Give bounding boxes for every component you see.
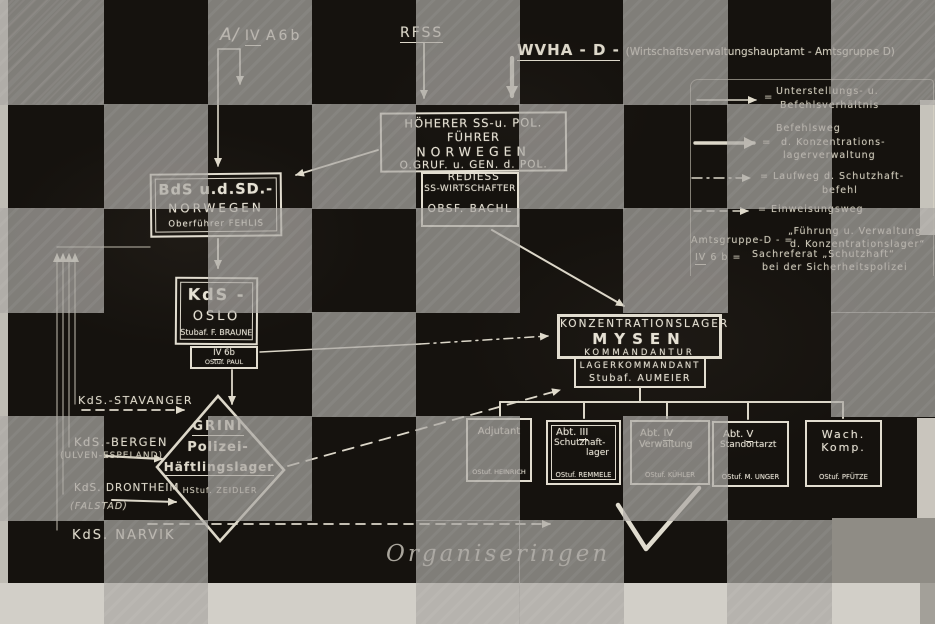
legend-def-amtsgruppe-term: Amtsgruppe-D - = [691, 235, 793, 246]
grini-line-3-text: Häftlingslager [164, 460, 274, 476]
legend-eq-2: = [762, 137, 771, 148]
legend-item-4-line-1: = Einweisungsweg [758, 204, 864, 215]
legend-item-3-line-2: befehl [822, 185, 858, 196]
legend-def-iv6b-line-2: bei der Sicherheitspolizei [762, 262, 908, 273]
kds-stavanger-label: KdS.-STAVANGER [78, 394, 193, 407]
amt-roman-iv: IV [245, 28, 261, 46]
amt-prefix: A/ [220, 25, 239, 45]
legend-item-1-line-1: Unterstellungs- u. [776, 86, 879, 97]
legend-item-2-line-2: d. Konzentrations- [781, 137, 886, 148]
wvha-paren: (Wirtschaftsverwaltungshauptamt - Amtsgr… [626, 46, 895, 58]
wvha-main: WVHA - D - [517, 41, 620, 61]
grini-name: HStuf. ZEIDLER [180, 486, 260, 495]
legend-item-1-line-2: Befehlsverhältnis [780, 100, 879, 111]
kds-drontheim-label: KdS. DRONTHEIM [74, 482, 180, 494]
kds-bergen-sub-label: (ULVEN-ESPELAND) [60, 451, 163, 461]
grini-title: GRINI [186, 419, 250, 434]
grini-line-3: Häftlingslager [160, 460, 278, 474]
wvha-label: WVHA - D - (Wirtschaftsverwaltungshaupta… [517, 41, 895, 59]
amt-suffix: A6b [266, 28, 302, 44]
legend-item-2-line-1: Befehlsweg [776, 123, 841, 134]
org-chart-photo: A/ IV A6b RFSS WVHA - D - (Wirtschaftsve… [0, 0, 935, 624]
legend-iv-roman: IV [695, 252, 706, 265]
legend-def-amtsgruppe-line-1: „Führung u. Verwaltung [788, 226, 922, 237]
kds-bergen-label: KdS.-BERGEN [74, 435, 168, 449]
rfss-label: RFSS [400, 25, 443, 43]
legend-iv-rest: 6 b = [706, 252, 741, 263]
amt-iv-a6b-label: A/ IV A6b [220, 25, 302, 45]
grini-line-2: Polizei- [178, 440, 258, 455]
kds-narvik-label: KdS. NARVIK [72, 528, 176, 543]
legend-def-iv6b-line-1: Sachreferat „Schutzhaft“ [752, 249, 895, 260]
legend-item-3-line-1: = Laufweg d. Schutzhaft- [760, 171, 904, 182]
legend-def-iv6b-term: IV 6 b = [695, 252, 741, 263]
legend-item-2-line-3: lagerverwaltung [783, 150, 876, 161]
legend-eq-1: = [764, 92, 773, 103]
grini-title-text: GRINI [192, 419, 243, 436]
kds-drontheim-sub-label: (FALSTAD) [70, 501, 128, 512]
page-caption: Organiseringen [386, 541, 610, 567]
